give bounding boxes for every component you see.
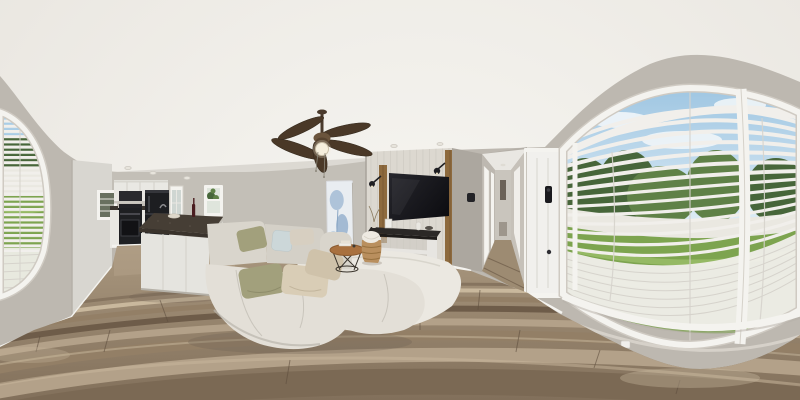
door-knob xyxy=(547,250,551,254)
range-hood-microwave xyxy=(119,191,142,201)
panorama-360-image xyxy=(0,0,800,400)
stove xyxy=(118,204,142,250)
hall-decor xyxy=(500,180,506,200)
side-wall xyxy=(452,148,482,272)
interior-door xyxy=(491,172,494,252)
interior-door xyxy=(484,166,489,265)
storage-basket xyxy=(362,231,382,266)
right-window xyxy=(557,80,800,350)
thermostat xyxy=(467,193,475,202)
fan-downrod xyxy=(321,112,324,134)
recessed-light xyxy=(501,164,506,166)
bowl xyxy=(168,214,180,218)
hallway xyxy=(482,147,527,295)
window-light-pool xyxy=(620,368,760,388)
small-window xyxy=(204,185,223,217)
books xyxy=(339,243,351,246)
panorama-canvas xyxy=(0,0,800,400)
